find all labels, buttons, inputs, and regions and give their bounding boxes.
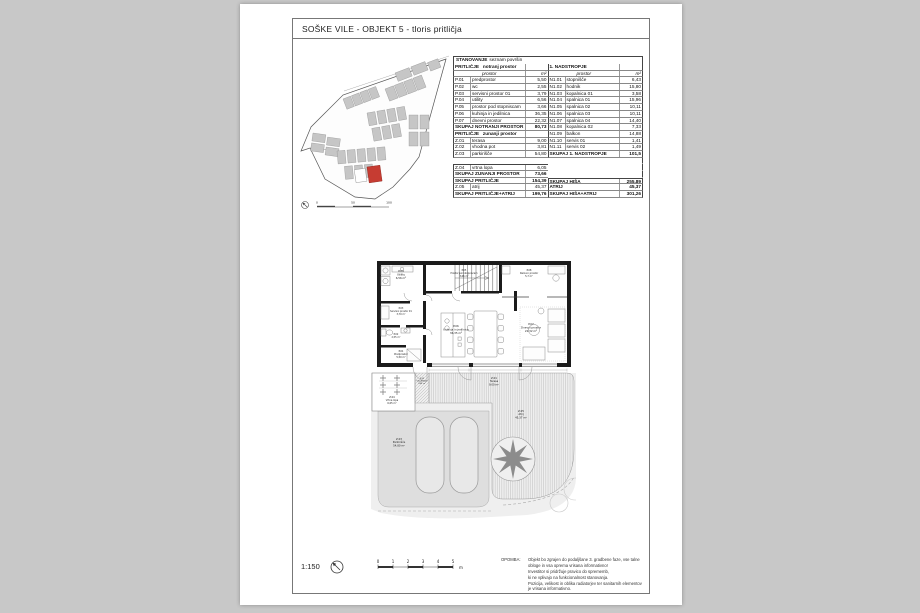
table-row: P.05prostor pod stopniscam3,66N1.05spaln…: [453, 104, 643, 111]
table-row: Z.05atrij45,37ATRIJ45,37: [453, 184, 643, 191]
parking-stall: [450, 417, 478, 493]
note-label: OPOMBA:: [501, 557, 528, 592]
note-text: Objekt bo zgrajen do podaljšane 3. gradb…: [528, 557, 643, 592]
scale-bar: 0 1 2 3 4 5 m: [373, 558, 473, 574]
table-cell-group: N1.06spalnica 0310,11: [548, 111, 644, 118]
svg-text:3,81 m²: 3,81 m²: [418, 382, 426, 385]
table-row: [453, 158, 643, 165]
svg-text:36,35 m²: 36,35 m²: [450, 331, 462, 335]
table-cell-group: Z.04vrtna lopa6,05: [453, 164, 548, 171]
table-row: Z.03parkirišče54,80SKUPAJ 1. NADSTROPJE1…: [453, 151, 643, 158]
svg-text:3,79 m²: 3,79 m²: [396, 313, 405, 316]
svg-text:4: 4: [437, 559, 440, 564]
svg-text:100: 100: [386, 201, 392, 205]
drawing-sheet: SOŠKE VILE - OBJEKT 5 - tloris pritličja: [240, 4, 682, 605]
table-cell-group: N1.11servis 021,49: [548, 144, 644, 151]
svg-text:50: 50: [351, 201, 355, 205]
table-row: P.06kuhinja in jedilnica36,35N1.06spalni…: [453, 111, 643, 118]
table-cell-group: P.07dnevni prostor22,32: [453, 118, 548, 125]
table-cell-group: 1. NADSTROPJE: [548, 64, 644, 71]
table-cell-group: [453, 158, 548, 165]
area-table: STANOVANJE seznam površin PRITLIČJE notr…: [453, 56, 643, 198]
table-cell-group: Z.03parkirišče54,80: [453, 151, 548, 158]
table-row: PRITLIČJE zunanji prostorN1.09balkon14,8…: [453, 131, 643, 138]
site-scale-bar: 0 50 100: [316, 201, 392, 208]
svg-text:0: 0: [316, 201, 318, 205]
opomba-note: OPOMBA: Objekt bo zgrajen do podaljšane …: [501, 557, 643, 592]
tree: [491, 437, 535, 481]
svg-text:9,00 m²: 9,00 m²: [489, 382, 499, 386]
svg-text:2,55 m²: 2,55 m²: [391, 336, 400, 339]
table-cell-group: P.06kuhinja in jedilnica36,35: [453, 111, 548, 118]
floor-plan: P.04 Utility 6,56 m² P.03 Servisni prost…: [371, 251, 576, 523]
svg-text:5: 5: [452, 559, 455, 564]
svg-text:45,37 m²: 45,37 m²: [515, 415, 527, 419]
svg-text:0: 0: [377, 559, 380, 564]
parking-stall: [416, 417, 444, 493]
table-row: Z.02vhodna pot3,81N1.11servis 021,49: [453, 144, 643, 151]
table-cell-group: P.01predprostor5,50: [453, 77, 548, 84]
table-cell-group: N1.09balkon14,88: [548, 131, 644, 138]
table-cell-group: ATRIJ45,37: [548, 184, 644, 191]
page-title: SOŠKE VILE - OBJEKT 5 - tloris pritličja: [302, 24, 462, 34]
table-cell-group: P.03servisni prostor 013,79: [453, 91, 548, 98]
table-cell-group: P.02wc2,55: [453, 84, 548, 91]
scale-text: 1:150: [301, 562, 320, 571]
table-cell-group: N1.03kopalnica 013,58: [548, 91, 644, 98]
north-arrow-icon: [329, 559, 345, 575]
garden-shed-area: [372, 373, 415, 411]
table-cell-group: SKUPAJ HIŠA+ATRIJ301,26: [548, 191, 644, 198]
table-cell-group: prostorm²: [548, 71, 644, 78]
table-cell-group: N1.08kopalnica 027,33: [548, 124, 644, 131]
table-row: prostorm²prostorm²: [453, 71, 643, 78]
table-row: P.01predprostor5,50N1.01stopnišče6,43: [453, 77, 643, 84]
table-cell-group: [548, 158, 644, 165]
table-cell-group: SKUPAJ ZUNANJI PROSTOR73,66: [453, 171, 548, 178]
table-cell-group: PRITLIČJE notranj prostor: [453, 64, 548, 71]
table-cell-group: prostorm²: [453, 71, 548, 78]
table-cell-group: SKUPAJ NOTRANJI PROSTOR80,73: [453, 124, 548, 131]
table-cell-group: N1.10servis 011,41: [548, 138, 644, 145]
site-north-icon: [302, 202, 309, 209]
table-cell-group: N1.05spalnica 0210,11: [548, 104, 644, 111]
table-cell-group: PRITLIČJE zunanji prostor: [453, 131, 548, 138]
table-row: SKUPAJ PRITLIČJE+ATRIJ199,76SKUPAJ HIŠA+…: [453, 191, 643, 198]
table-row: Z.04vrtna lopa6,05: [453, 164, 643, 171]
table-cell-group: SKUPAJ PRITLIČJE+ATRIJ199,76: [453, 191, 548, 198]
svg-text:5,7 m²: 5,7 m²: [525, 275, 533, 278]
svg-text:5,50 m²: 5,50 m²: [396, 356, 405, 359]
title-bar: SOŠKE VILE - OBJEKT 5 - tloris pritličja: [293, 19, 649, 39]
table-title: STANOVANJE seznam površin: [453, 56, 643, 64]
table-cell-group: P.04utility6,56: [453, 97, 548, 104]
svg-text:6,05 m²: 6,05 m²: [387, 402, 396, 405]
svg-text:2: 2: [407, 559, 410, 564]
table-cell-group: P.05prostor pod stopniscam3,66: [453, 104, 548, 111]
table-row: SKUPAJ NOTRANJI PROSTOR80,73N1.08kopalni…: [453, 124, 643, 131]
table-row: P.04utility6,56N1.04spalnica 0115,96: [453, 97, 643, 104]
svg-text:22,32 m²: 22,32 m²: [525, 329, 537, 333]
table-cell-group: [548, 164, 644, 171]
svg-text:6,56 m²: 6,56 m²: [396, 276, 407, 280]
svg-text:54,80 m²: 54,80 m²: [393, 443, 405, 447]
table-row: SKUPAJ PRITLIČJE154,39SKUPAJ HIŠA255,89: [453, 178, 643, 185]
drawing-frame: SOŠKE VILE - OBJEKT 5 - tloris pritličja: [292, 18, 650, 594]
table-row: PRITLIČJE notranj prostor1. NADSTROPJE: [453, 64, 643, 71]
table-row: SKUPAJ ZUNANJI PROSTOR73,66: [453, 171, 643, 178]
table-row: Z.01terasa9,00N1.10servis 011,41: [453, 138, 643, 145]
table-cell-group: N1.01stopnišče6,43: [548, 77, 644, 84]
table-row: P.02wc2,55N1.02hodnik15,80: [453, 84, 643, 91]
table-cell-group: Z.01terasa9,00: [453, 138, 548, 145]
table-rows: PRITLIČJE notranj prostor1. NADSTROPJEpr…: [453, 64, 643, 198]
table-row: P.07dnevni prostor22,32N1.07spalnica 041…: [453, 118, 643, 125]
sofa: [548, 309, 565, 322]
desk: [548, 266, 565, 274]
svg-text:m: m: [459, 565, 463, 570]
svg-text:1: 1: [392, 559, 395, 564]
dimension-line: [429, 369, 567, 372]
table-cell-group: SKUPAJ PRITLIČJE154,39: [453, 178, 548, 185]
table-cell-group: N1.04spalnica 0115,96: [548, 97, 644, 104]
svg-text:3,66 m²: 3,66 m²: [459, 275, 468, 278]
dining-table: [474, 311, 497, 357]
site-plan: 0 50 100: [297, 55, 459, 215]
table-cell-group: Z.05atrij45,37: [453, 184, 548, 191]
table-cell-group: [548, 171, 644, 178]
table-cell-group: SKUPAJ 1. NADSTROPJE101,5: [548, 151, 644, 158]
table-cell-group: N1.07spalnica 0414,40: [548, 118, 644, 125]
svg-text:3: 3: [422, 559, 425, 564]
table-row: P.03servisni prostor 013,79N1.03kopalnic…: [453, 91, 643, 98]
table-cell-group: SKUPAJ HIŠA255,89: [548, 178, 644, 185]
table-cell-group: N1.02hodnik15,80: [548, 84, 644, 91]
table-cell-group: Z.02vhodna pot3,81: [453, 144, 548, 151]
